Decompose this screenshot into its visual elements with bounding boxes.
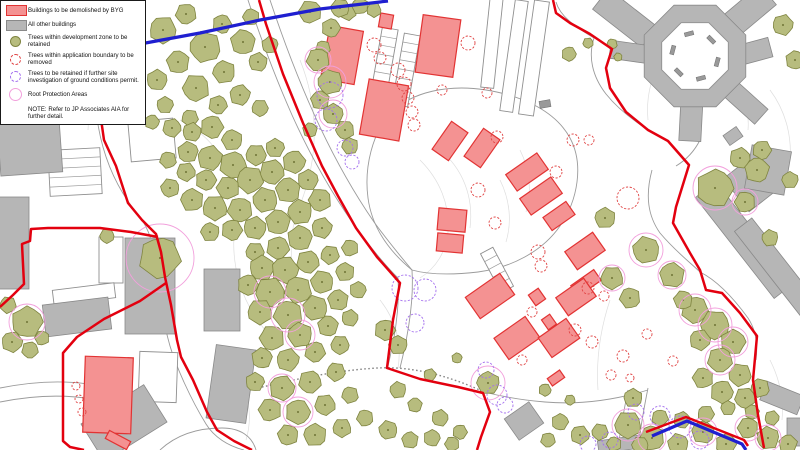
tree-center-dot (239, 94, 241, 96)
tree-center-dot (579, 434, 581, 436)
tree-center-dot (384, 329, 386, 331)
tree-center-dot (321, 227, 323, 229)
tree-center-dot (211, 126, 213, 128)
tree-conditional-icon (10, 71, 21, 82)
tree-center-dot (195, 87, 197, 89)
tree-center-dot (177, 61, 179, 63)
tree-retained-icon (592, 424, 608, 441)
root-protection-icon (9, 88, 22, 101)
tree-retained-icon (252, 101, 268, 117)
tree-center-dot (627, 424, 629, 426)
tree-retained-icon (390, 381, 406, 398)
tree-center-dot (335, 371, 337, 373)
tree-center-dot (187, 151, 189, 153)
building-retained (504, 402, 543, 441)
building-other (99, 237, 123, 283)
tree-removed-icon (642, 329, 652, 339)
tree-retained-icon (341, 240, 357, 256)
tree-center-dot (223, 71, 225, 73)
tree-center-dot (299, 334, 301, 336)
tree-center-dot (314, 434, 316, 436)
tree-removed-icon (75, 395, 83, 403)
tree-center-dot (277, 221, 279, 223)
tree-center-dot (162, 29, 164, 31)
tree-center-dot (307, 261, 309, 263)
tree-removed-icon (626, 374, 634, 382)
tree-center-dot (274, 147, 276, 149)
tree-center-dot (327, 325, 329, 327)
tree-center-dot (156, 79, 158, 81)
tree-removed-icon (586, 336, 598, 348)
tree-center-dot (702, 377, 704, 379)
legend-row: Buildings to be demolished by BYG (4, 5, 142, 16)
tree-center-dot (321, 281, 323, 283)
tree-center-dot (307, 179, 309, 181)
legend-row: Root Protection Areas (4, 88, 142, 101)
tree-removed-icon (606, 370, 616, 380)
tree-center-dot (344, 271, 346, 273)
tree-center-dot (787, 443, 789, 445)
tree-center-dot (759, 387, 761, 389)
contour-line (500, 180, 509, 242)
legend-label: Trees within application boundary to be … (28, 52, 142, 66)
tree-retained-icon (408, 398, 423, 412)
tree-retained-icon (10, 36, 21, 47)
tree-center-dot (171, 127, 173, 129)
tree-center-dot (732, 341, 734, 343)
site-plan: Buildings to be demolished by BYG All ot… (0, 0, 800, 450)
tree-conditional-icon (414, 279, 436, 301)
demolish-building-swatch (6, 5, 27, 16)
tree-center-dot (239, 209, 241, 211)
tree-center-dot (671, 274, 673, 276)
tree-removed-icon (406, 106, 418, 118)
tree-removed-icon (599, 291, 609, 301)
tree-center-dot (714, 187, 716, 189)
tree-removed-icon (461, 36, 475, 50)
tree-center-dot (11, 341, 13, 343)
tree-center-dot (185, 13, 187, 15)
tree-retained-icon (367, 3, 381, 17)
tree-removed-icon (535, 260, 547, 272)
legend-label: Trees within development zone to be reta… (28, 34, 142, 48)
tree-center-dot (714, 324, 716, 326)
tree-retained-icon (606, 437, 620, 450)
tree-center-dot (756, 169, 758, 171)
legend-row: Trees to be retained if further site inv… (4, 70, 142, 84)
tree-center-dot (339, 344, 341, 346)
tree-retained-icon (356, 410, 372, 426)
tree-center-dot (191, 131, 193, 133)
tree-retained-icon (762, 229, 778, 246)
tree-center-dot (254, 381, 256, 383)
tree-center-dot (767, 437, 769, 439)
legend-note: NOTE: Refer to JP Associates AIA for fur… (28, 106, 140, 121)
tree-center-dot (794, 59, 796, 61)
building-demolish (464, 128, 500, 167)
tree-retained-icon (562, 47, 576, 61)
tree-center-dot (387, 429, 389, 431)
tree-center-dot (744, 201, 746, 203)
octagon-courtyard (662, 23, 729, 90)
tree-center-dot (324, 404, 326, 406)
tree-center-dot (232, 164, 234, 166)
tree-center-dot (341, 427, 343, 429)
tree-center-dot (271, 171, 273, 173)
tree-removed-icon (489, 217, 501, 229)
tree-removed-icon (517, 355, 527, 365)
tree-center-dot (317, 59, 319, 61)
tree-center-dot (332, 113, 334, 115)
legend-label: Trees to be retained if further site inv… (28, 70, 142, 84)
tree-retained-icon (425, 430, 441, 446)
tree-center-dot (261, 267, 263, 269)
tree-retained-icon (342, 387, 359, 403)
tree-center-dot (221, 23, 223, 25)
building-demolish (359, 79, 408, 141)
legend-label: Buildings to be demolished by BYG (28, 7, 124, 14)
tree-center-dot (26, 321, 28, 323)
tree-center-dot (209, 231, 211, 233)
parked-car (539, 100, 551, 109)
tree-removed-icon (527, 307, 537, 317)
tree-center-dot (231, 229, 233, 231)
tree-center-dot (725, 443, 727, 445)
tree-center-dot (259, 311, 261, 313)
tree-center-dot (699, 339, 701, 341)
tree-center-dot (255, 154, 257, 156)
tree-center-dot (632, 397, 634, 399)
legend-row: All other buildings (4, 20, 142, 31)
tree-retained-icon (157, 96, 173, 112)
tree-center-dot (721, 391, 723, 393)
building-demolish (565, 232, 605, 270)
tree-center-dot (299, 211, 301, 213)
tree-center-dot (261, 357, 263, 359)
tree-removed-icon (471, 183, 485, 197)
tree-retained-icon (668, 434, 688, 450)
tree-center-dot (247, 284, 249, 286)
tree-center-dot (217, 104, 219, 106)
tree-retained-icon (351, 281, 367, 297)
tree-center-dot (227, 187, 229, 189)
tree-center-dot (209, 157, 211, 159)
other-building-swatch (6, 20, 27, 31)
building-demolish (415, 15, 461, 78)
tree-removed-icon (550, 166, 562, 178)
tree-retained-icon (539, 384, 551, 396)
tree-center-dot (719, 359, 721, 361)
building-demolish (436, 233, 463, 253)
tree-center-dot (739, 157, 741, 159)
tree-center-dot (645, 249, 647, 251)
tree-center-dot (747, 427, 749, 429)
tree-removed-icon (10, 54, 21, 65)
tree-retained-icon (342, 309, 358, 326)
tree-center-dot (204, 46, 206, 48)
tree-center-dot (169, 187, 171, 189)
tree-center-dot (337, 299, 339, 301)
tree-center-dot (297, 289, 299, 291)
tree-center-dot (249, 179, 251, 181)
tree-center-dot (287, 434, 289, 436)
tree-center-dot (277, 247, 279, 249)
building-retained (723, 126, 743, 145)
tree-center-dot (314, 307, 316, 309)
building-retained (204, 269, 240, 331)
tree-retained-icon (452, 353, 462, 363)
tree-center-dot (782, 24, 784, 26)
tree-retained-icon (402, 432, 419, 448)
tree-center-dot (694, 309, 696, 311)
building-demolish (83, 356, 134, 434)
tree-center-dot (330, 27, 332, 29)
tree-retained-icon (453, 425, 467, 439)
tree-center-dot (677, 443, 679, 445)
tree-center-dot (254, 227, 256, 229)
legend-row: Trees within development zone to be reta… (4, 34, 142, 48)
tree-center-dot (185, 171, 187, 173)
tree-retained-icon (786, 51, 800, 69)
map-legend: Buildings to be demolished by BYG All ot… (0, 0, 146, 125)
legend-label: All other buildings (28, 21, 76, 28)
tree-conditional-icon (345, 155, 359, 169)
tree-center-dot (287, 314, 289, 316)
tree-center-dot (281, 387, 283, 389)
building-demolish (547, 370, 564, 386)
tree-center-dot (242, 41, 244, 43)
tree-removed-icon (482, 88, 492, 98)
tree-center-dot (329, 254, 331, 256)
tree-retained-icon (698, 407, 714, 423)
tree-center-dot (299, 237, 301, 239)
building-retained (42, 297, 111, 337)
tree-retained-icon (22, 342, 39, 358)
tree-center-dot (269, 409, 271, 411)
road-line (0, 382, 88, 388)
tree-retained-icon (433, 409, 449, 426)
tree-center-dot (611, 277, 613, 279)
building-demolish (528, 288, 545, 306)
tree-center-dot (314, 351, 316, 353)
tree-center-dot (739, 374, 741, 376)
tree-retained-icon (444, 437, 458, 450)
road-line (160, 428, 256, 450)
tree-center-dot (257, 61, 259, 63)
building-demolish (543, 201, 575, 230)
road-line (0, 396, 92, 402)
tree-center-dot (191, 199, 193, 201)
tree-center-dot (744, 397, 746, 399)
building-demolish (378, 13, 393, 29)
building-retained (0, 120, 63, 176)
tree-center-dot (319, 99, 321, 101)
contour-line (598, 300, 611, 390)
tree-retained-icon (565, 395, 575, 405)
building-demolish (437, 208, 467, 232)
tree-center-dot (284, 269, 286, 271)
tree-center-dot (287, 189, 289, 191)
tree-center-dot (231, 139, 233, 141)
tree-center-dot (287, 359, 289, 361)
tree-center-dot (214, 207, 216, 209)
parking-strip-outline (481, 0, 504, 88)
tree-center-dot (487, 382, 489, 384)
tree-center-dot (293, 161, 295, 163)
tree-center-dot (254, 251, 256, 253)
tree-retained-icon (553, 414, 569, 430)
tree-removed-icon (584, 135, 594, 145)
tree-center-dot (264, 199, 266, 201)
legend-label: Root Protection Areas (28, 91, 87, 98)
parking-strip (481, 0, 504, 88)
tree-removed-icon (408, 119, 420, 131)
tree-retained-icon (765, 411, 779, 426)
tree-center-dot (205, 179, 207, 181)
tree-center-dot (271, 337, 273, 339)
tree-removed-icon (668, 356, 678, 366)
tree-center-dot (344, 129, 346, 131)
tree-center-dot (397, 344, 399, 346)
tree-center-dot (269, 291, 271, 293)
tree-retained-icon (541, 433, 556, 447)
tree-center-dot (309, 381, 311, 383)
building-demolish (432, 121, 468, 160)
tree-removed-icon (617, 187, 639, 209)
building-demolish (494, 316, 540, 359)
legend-row: Trees within application boundary to be … (4, 52, 142, 66)
tree-retained-icon (160, 152, 177, 168)
tree-center-dot (297, 411, 299, 413)
tree-retained-icon (342, 138, 358, 155)
tree-removed-icon (617, 350, 629, 362)
tree-center-dot (629, 297, 631, 299)
tree-center-dot (604, 217, 606, 219)
tree-center-dot (761, 149, 763, 151)
tree-center-dot (319, 199, 321, 201)
